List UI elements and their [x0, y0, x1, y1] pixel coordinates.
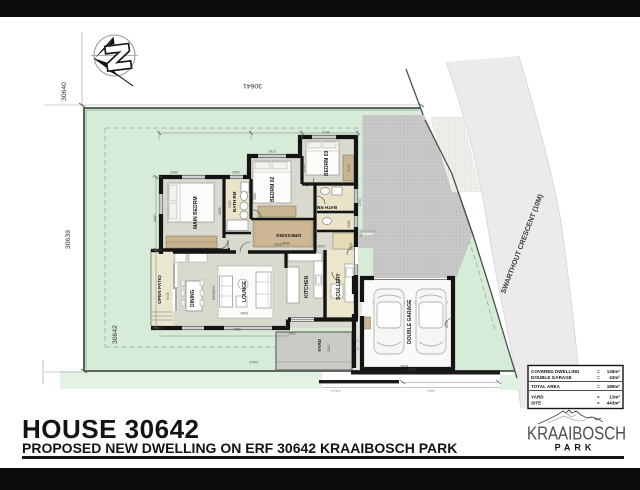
- svg-text:1: 1: [357, 339, 359, 343]
- svg-text:K930: K930: [212, 292, 216, 300]
- svg-text:=: =: [597, 369, 600, 374]
- svg-text:=: =: [597, 384, 600, 389]
- svg-text:443m²: 443m²: [607, 401, 621, 406]
- svg-text:1700: 1700: [358, 198, 362, 206]
- svg-text:SCULLERY: SCULLERY: [336, 273, 342, 300]
- svg-text:MAIN BEDRM: MAIN BEDRM: [193, 197, 199, 230]
- svg-text:2: 2: [357, 347, 359, 351]
- svg-text:4435: 4435: [218, 207, 222, 215]
- svg-text:146m²: 146m²: [607, 369, 621, 374]
- svg-text:1940: 1940: [317, 244, 325, 248]
- svg-text:BEDRM 03: BEDRM 03: [324, 150, 330, 176]
- svg-text:3603: 3603: [170, 170, 178, 174]
- svg-text:BATH RM: BATH RM: [232, 191, 237, 212]
- svg-text:3750: 3750: [274, 242, 282, 246]
- svg-text:189m²: 189m²: [607, 384, 621, 389]
- svg-text:5660: 5660: [233, 327, 241, 331]
- svg-text:1000: 1000: [359, 229, 363, 237]
- svg-text:2420: 2420: [327, 344, 331, 352]
- svg-text:2590: 2590: [288, 331, 296, 335]
- svg-text:TOTAL AREA: TOTAL AREA: [531, 384, 561, 389]
- svg-text:PROPOSED NEW DWELLING ON ERF 3: PROPOSED NEW DWELLING ON ERF 30642 KRAAI…: [22, 440, 457, 456]
- svg-text:43m²: 43m²: [609, 375, 620, 380]
- svg-text:YARD: YARD: [531, 395, 544, 400]
- svg-text:2135: 2135: [302, 164, 306, 172]
- svg-text:3975: 3975: [322, 130, 330, 134]
- svg-text:2750: 2750: [268, 149, 276, 153]
- svg-text:=: =: [597, 401, 600, 406]
- svg-text:3190: 3190: [282, 241, 290, 245]
- svg-text:KITCHEN: KITCHEN: [304, 275, 310, 298]
- svg-text:DOUBLE GARAGE: DOUBLE GARAGE: [531, 375, 572, 380]
- svg-text:BATH RM: BATH RM: [316, 205, 337, 210]
- svg-text:3090: 3090: [228, 200, 232, 208]
- svg-text:DOUBLE GARAGE: DOUBLE GARAGE: [407, 299, 413, 344]
- svg-text:COVERED DWELLING: COVERED DWELLING: [531, 369, 580, 374]
- svg-text:30639: 30639: [65, 230, 72, 249]
- svg-text:DALK: DALK: [248, 360, 258, 364]
- svg-text:LOUNGE: LOUNGE: [242, 280, 248, 302]
- svg-text:YARD: YARD: [317, 338, 323, 352]
- svg-text:2103: 2103: [347, 164, 351, 172]
- svg-text:30642: 30642: [112, 325, 119, 344]
- svg-text:PARK: PARK: [555, 443, 596, 453]
- svg-text:13m²: 13m²: [609, 395, 620, 400]
- svg-text:OPEN PATIO: OPEN PATIO: [157, 275, 163, 304]
- svg-text:30640: 30640: [61, 82, 68, 101]
- svg-text:6100: 6100: [445, 320, 449, 328]
- svg-text:5444: 5444: [240, 311, 248, 315]
- svg-text:=: =: [597, 375, 600, 380]
- svg-text:SITE: SITE: [531, 401, 541, 406]
- svg-text:DINING: DINING: [190, 289, 196, 307]
- svg-text:30641: 30641: [243, 82, 262, 89]
- svg-text:KRAAIBOSCH: KRAAIBOSCH: [527, 424, 626, 444]
- svg-text:1525: 1525: [349, 242, 353, 250]
- svg-text:4930: 4930: [212, 285, 216, 293]
- svg-text:2345: 2345: [347, 220, 351, 228]
- svg-text:2603: 2603: [232, 170, 240, 174]
- svg-text:5005: 5005: [166, 292, 170, 300]
- svg-text:DRESSING: DRESSING: [276, 232, 301, 238]
- svg-text:4440: 4440: [153, 214, 157, 222]
- svg-text:3660: 3660: [253, 192, 257, 200]
- svg-text:=: =: [597, 395, 600, 400]
- svg-text:BEDRM 02: BEDRM 02: [270, 176, 276, 202]
